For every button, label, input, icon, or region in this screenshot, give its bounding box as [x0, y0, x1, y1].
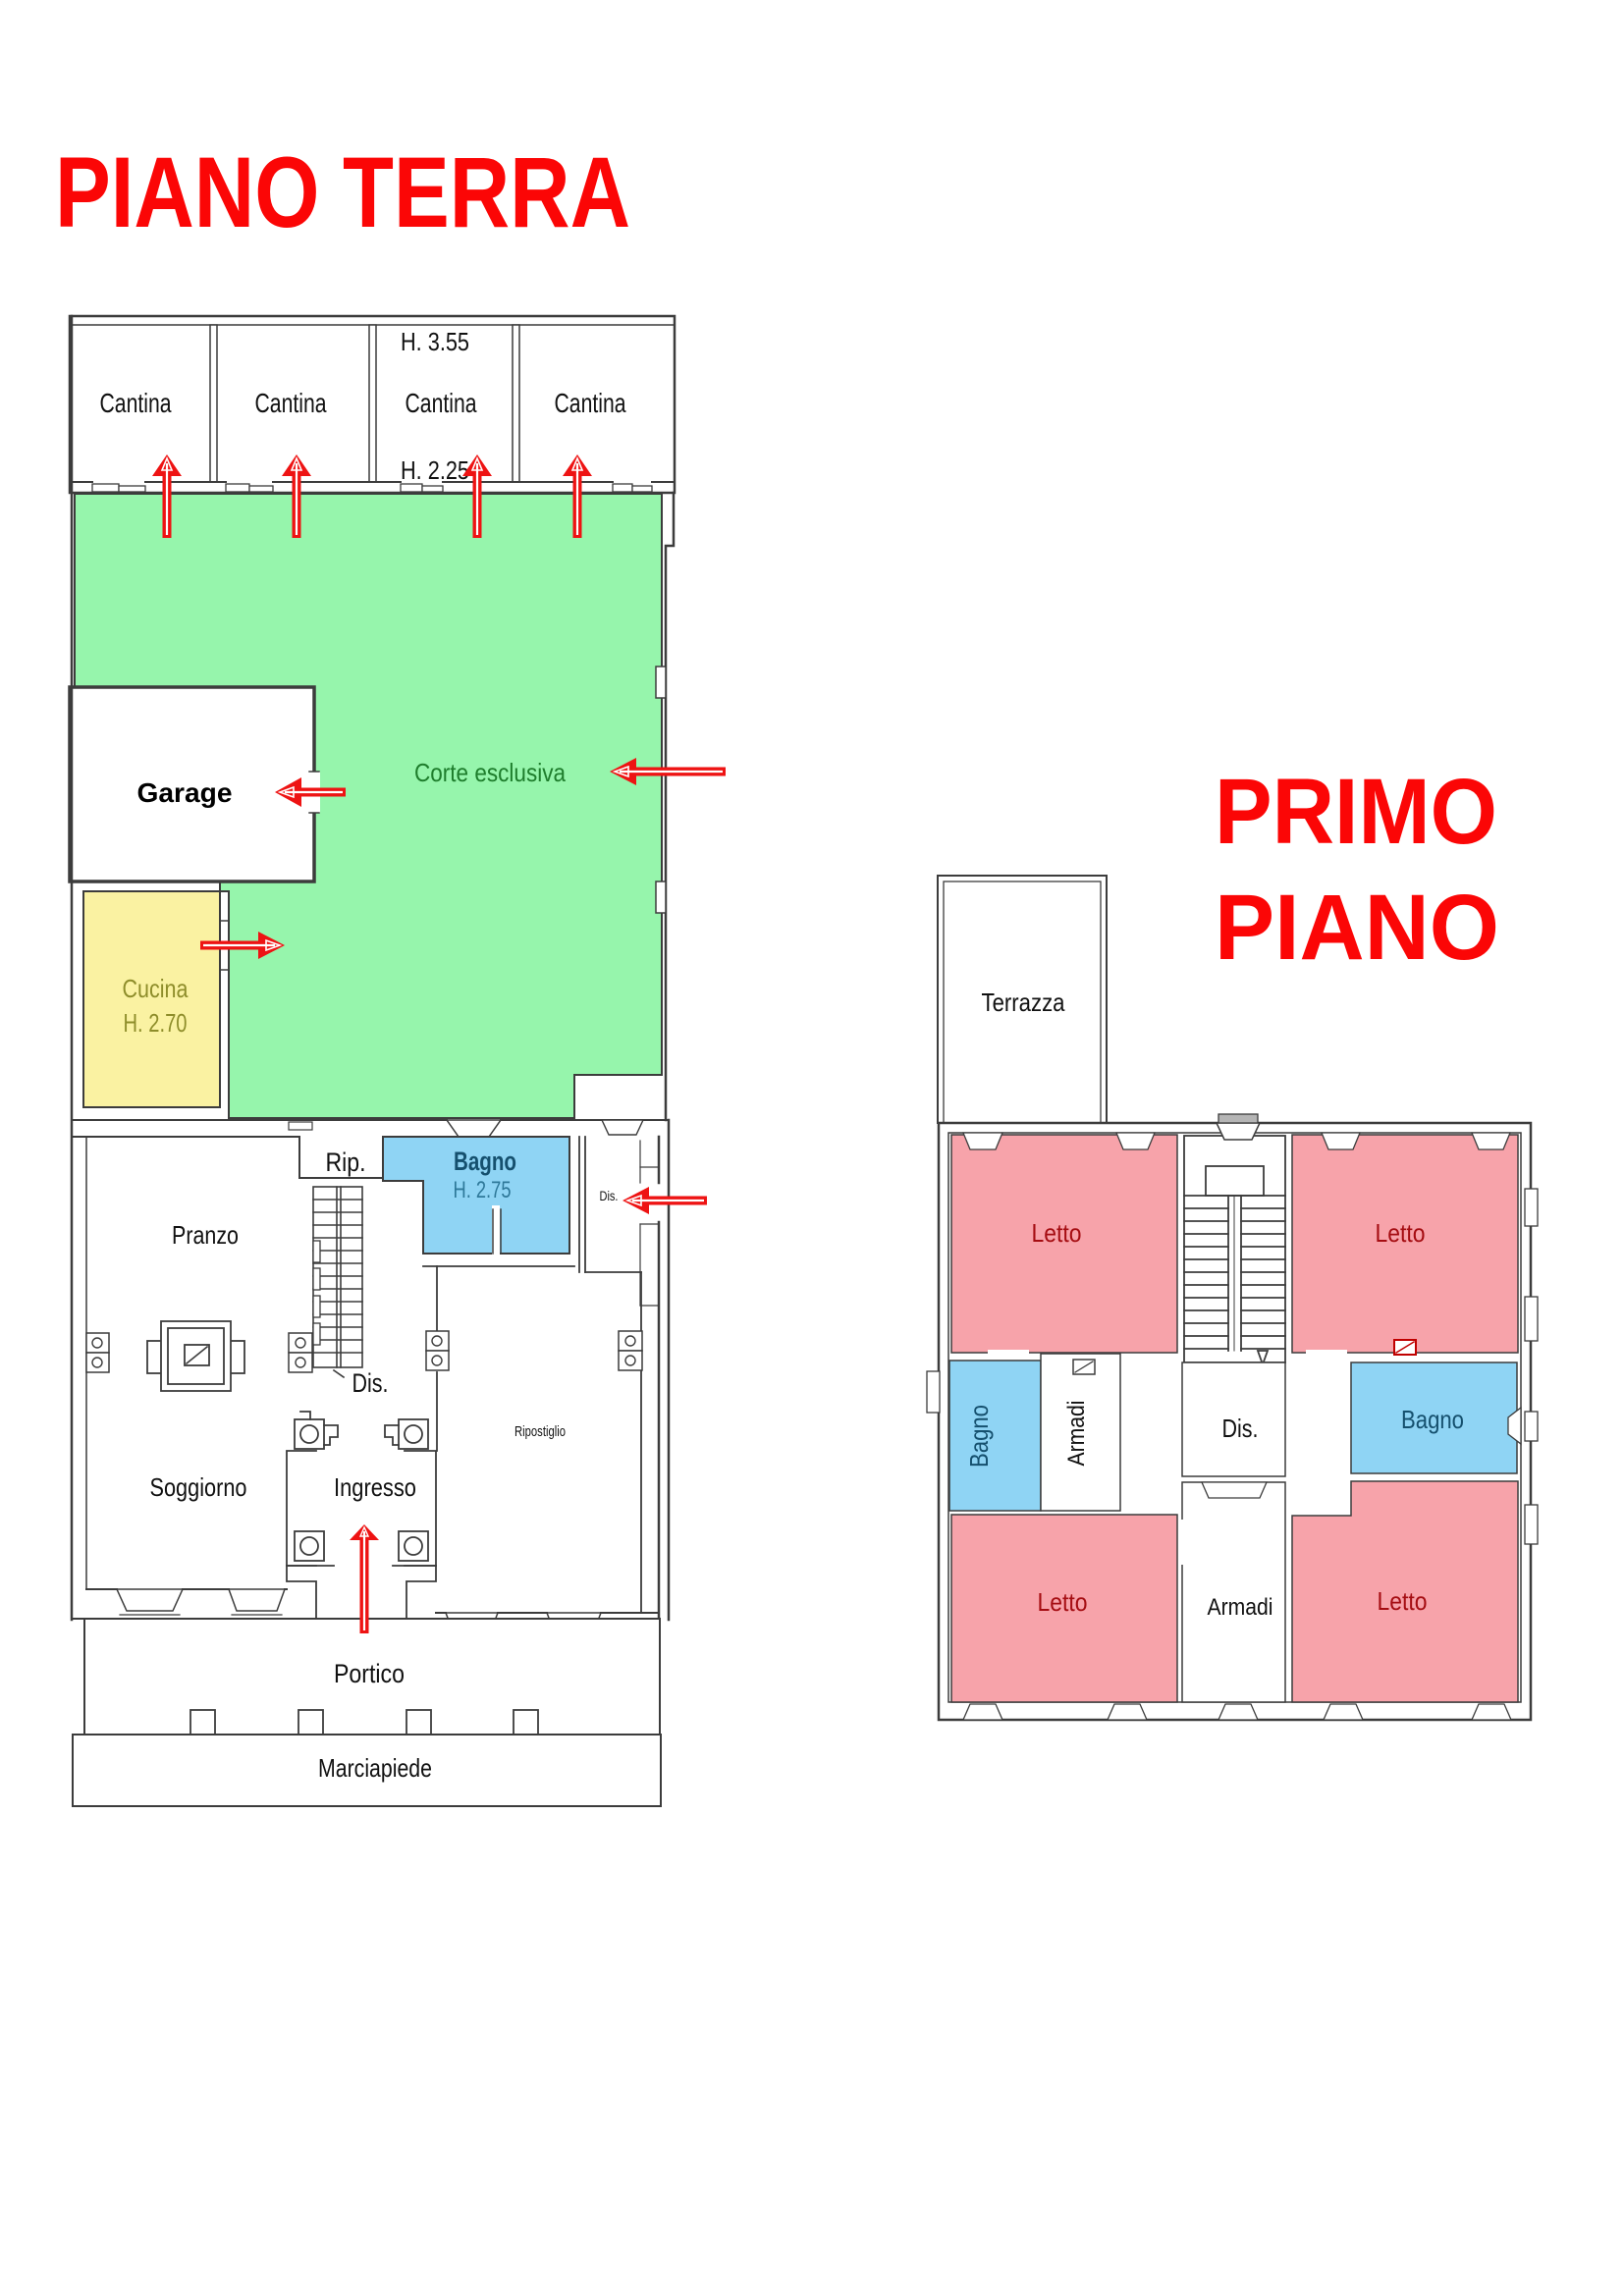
svg-text:Terrazza: Terrazza [982, 988, 1065, 1017]
svg-text:PIANO: PIANO [1215, 876, 1499, 980]
svg-text:Marciapiede: Marciapiede [318, 1753, 432, 1783]
svg-text:Cantina: Cantina [100, 388, 172, 418]
svg-text:Letto: Letto [1032, 1218, 1082, 1248]
svg-text:Ripostiglio: Ripostiglio [514, 1423, 566, 1440]
svg-text:Garage: Garage [137, 777, 233, 808]
svg-text:Soggiorno: Soggiorno [150, 1472, 247, 1502]
svg-text:H. 2.25: H. 2.25 [401, 455, 469, 485]
svg-text:Bagno: Bagno [1401, 1405, 1464, 1434]
svg-text:Rip.: Rip. [326, 1148, 366, 1177]
svg-text:H. 3.55: H. 3.55 [401, 327, 469, 356]
svg-text:Armadi: Armadi [1208, 1594, 1273, 1621]
svg-text:Cantina: Cantina [406, 388, 477, 418]
svg-text:Ingresso: Ingresso [334, 1472, 416, 1502]
svg-text:Dis.: Dis. [352, 1368, 389, 1398]
svg-text:H. 2.75: H. 2.75 [454, 1177, 512, 1203]
svg-text:Portico: Portico [334, 1659, 405, 1688]
svg-text:Cantina: Cantina [255, 388, 327, 418]
svg-text:PIANO TERRA: PIANO TERRA [55, 136, 630, 248]
svg-text:Dis.: Dis. [600, 1188, 619, 1203]
svg-text:Corte esclusiva: Corte esclusiva [414, 758, 566, 787]
svg-text:Cantina: Cantina [555, 388, 626, 418]
svg-text:Pranzo: Pranzo [172, 1220, 239, 1250]
svg-text:Armadi: Armadi [1063, 1401, 1090, 1467]
svg-text:H. 2.70: H. 2.70 [124, 1008, 188, 1038]
svg-text:Letto: Letto [1376, 1218, 1426, 1248]
svg-text:Bagno: Bagno [964, 1405, 994, 1468]
svg-text:Cucina: Cucina [123, 974, 189, 1003]
svg-text:Letto: Letto [1038, 1587, 1088, 1617]
svg-text:PRIMO: PRIMO [1215, 760, 1497, 864]
svg-text:Dis.: Dis. [1222, 1414, 1259, 1443]
svg-text:Letto: Letto [1378, 1586, 1428, 1616]
svg-text:Bagno: Bagno [454, 1147, 516, 1176]
